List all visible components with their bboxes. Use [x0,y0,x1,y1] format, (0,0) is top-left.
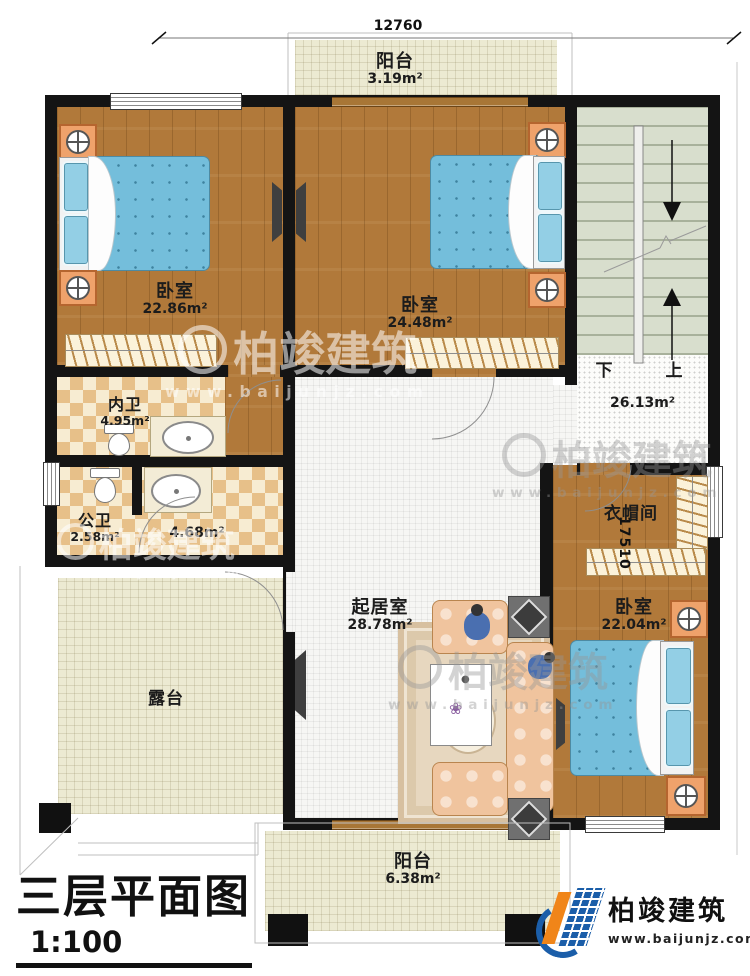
cloakroom-label: 衣帽间 [588,505,674,524]
dimension-top: 12760 [358,18,438,34]
living-label: 起居室28.78m² [318,598,442,634]
pillow-icon [664,646,693,706]
pillow-icon [62,214,90,266]
window-icon [585,816,665,833]
bedroom3-label: 卧室22.04m² [578,598,690,634]
logo: 柏竣建筑 www.baijunjz.com [536,882,746,960]
bath-inner-label: 内卫4.95m² [88,396,162,428]
stairs-down-label: 下 [592,362,616,381]
watermark-glyph-icon [57,523,94,560]
dimension-right: 17510 [616,516,632,606]
bedroom1-label: 卧室22.86m² [100,282,250,318]
toilet-icon [108,433,130,456]
tv-icon [295,650,306,720]
sliding-door-icon [332,97,528,107]
plan-scale: 1:100 [30,925,122,959]
pillow-icon [536,212,564,264]
balcony-bottom-label: 阳台6.38m² [348,852,478,888]
terrace-label: 露台 [128,690,204,709]
tv-icon [272,182,282,242]
pillow-icon [62,161,90,213]
pillow-icon [664,708,693,768]
lamp-icon [535,278,559,302]
watermark: 柏竣建筑 www.baijunjz.com [388,640,618,713]
title-underline [16,963,252,968]
logo-url: www.baijunjz.com [608,931,750,946]
balcony-top-label: 阳台3.19m² [330,52,460,88]
wall [565,95,577,385]
tv-icon [296,182,306,242]
nightstand-icon [528,122,566,158]
side-table-icon [508,596,550,638]
door-opening [286,572,295,632]
nightstand-icon [666,776,706,816]
lamp-icon [674,784,698,808]
watermark-glyph-icon [178,325,227,374]
watermark: 柏竣建筑 www.baijunjz.com [165,318,430,401]
nightstand-icon [59,270,97,306]
title-block: 三层平面图1:100 本层建筑面积: 159.60m² 层高: 3.3m [16,860,276,976]
side-table-icon [508,798,550,840]
plan-title: 三层平面图 [16,870,251,923]
window-icon [43,462,60,506]
watermark-glyph-icon [502,433,546,477]
lamp-icon [66,276,90,300]
closet-rack-icon [586,548,706,576]
watermark-glyph-icon [398,645,442,689]
person-icon [462,604,492,644]
lamp-icon [66,130,90,154]
logo-brand: 柏竣建筑 [608,898,750,925]
armchair-icon [432,762,508,816]
floor-plan: ❀● 12760 17510 阳台3.19m [0,0,750,976]
sink-icon [151,474,201,508]
stairs-up-label: 上 [662,362,686,381]
watermark: 柏竣建筑 www.baijunjz.com [48,518,244,580]
wall [132,467,142,515]
sink-icon [162,421,214,454]
toilet-icon [94,477,116,503]
lamp-icon [535,128,559,152]
window-icon [110,93,242,110]
watermark: 柏竣建筑 www.baijunjz.com [492,428,722,501]
stair-hall-area-label: 26.13m² [595,396,690,412]
column [39,803,71,833]
pillow-icon [536,160,564,212]
nightstand-icon [528,272,566,308]
nightstand-icon [59,124,97,160]
staircase [577,107,708,355]
